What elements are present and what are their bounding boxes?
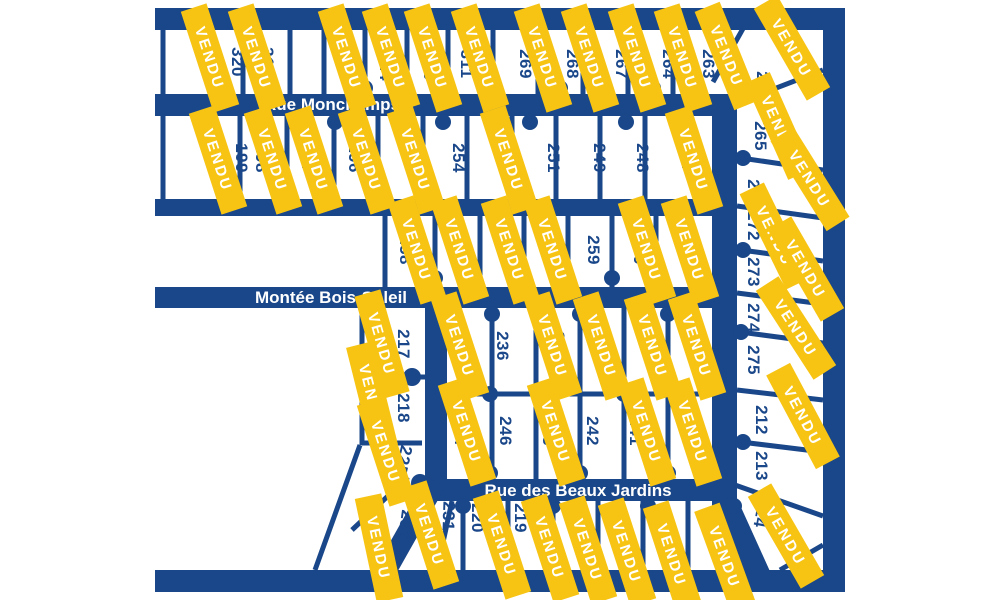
lot-number-218: 218 [394,393,413,423]
street-label-rue-des-beaux-jardins: Rue des Beaux Jardins [484,481,671,500]
street-vertical-east [712,94,737,509]
subdivision-map: Rue Monchamps Montée Bois-Soleil Rue des… [0,0,1000,600]
lot-number-249: 249 [590,143,609,173]
lot-number-236: 236 [493,331,512,361]
lot-number-254: 254 [449,143,468,173]
lot-number-248: 248 [633,143,652,173]
lot-number-242: 242 [583,416,602,446]
lot-number-273: 273 [744,257,763,287]
lot-number-246: 246 [496,416,515,446]
lot-number-275: 275 [744,345,763,375]
lot-number-274: 274 [744,303,763,333]
lot-number-251: 251 [544,143,563,173]
lot-number-212: 212 [752,405,771,435]
lot-number-213: 213 [752,451,771,481]
lot-number-259: 259 [584,235,603,265]
map-canvas: Rue Monchamps Montée Bois-Soleil Rue des… [0,0,1000,600]
